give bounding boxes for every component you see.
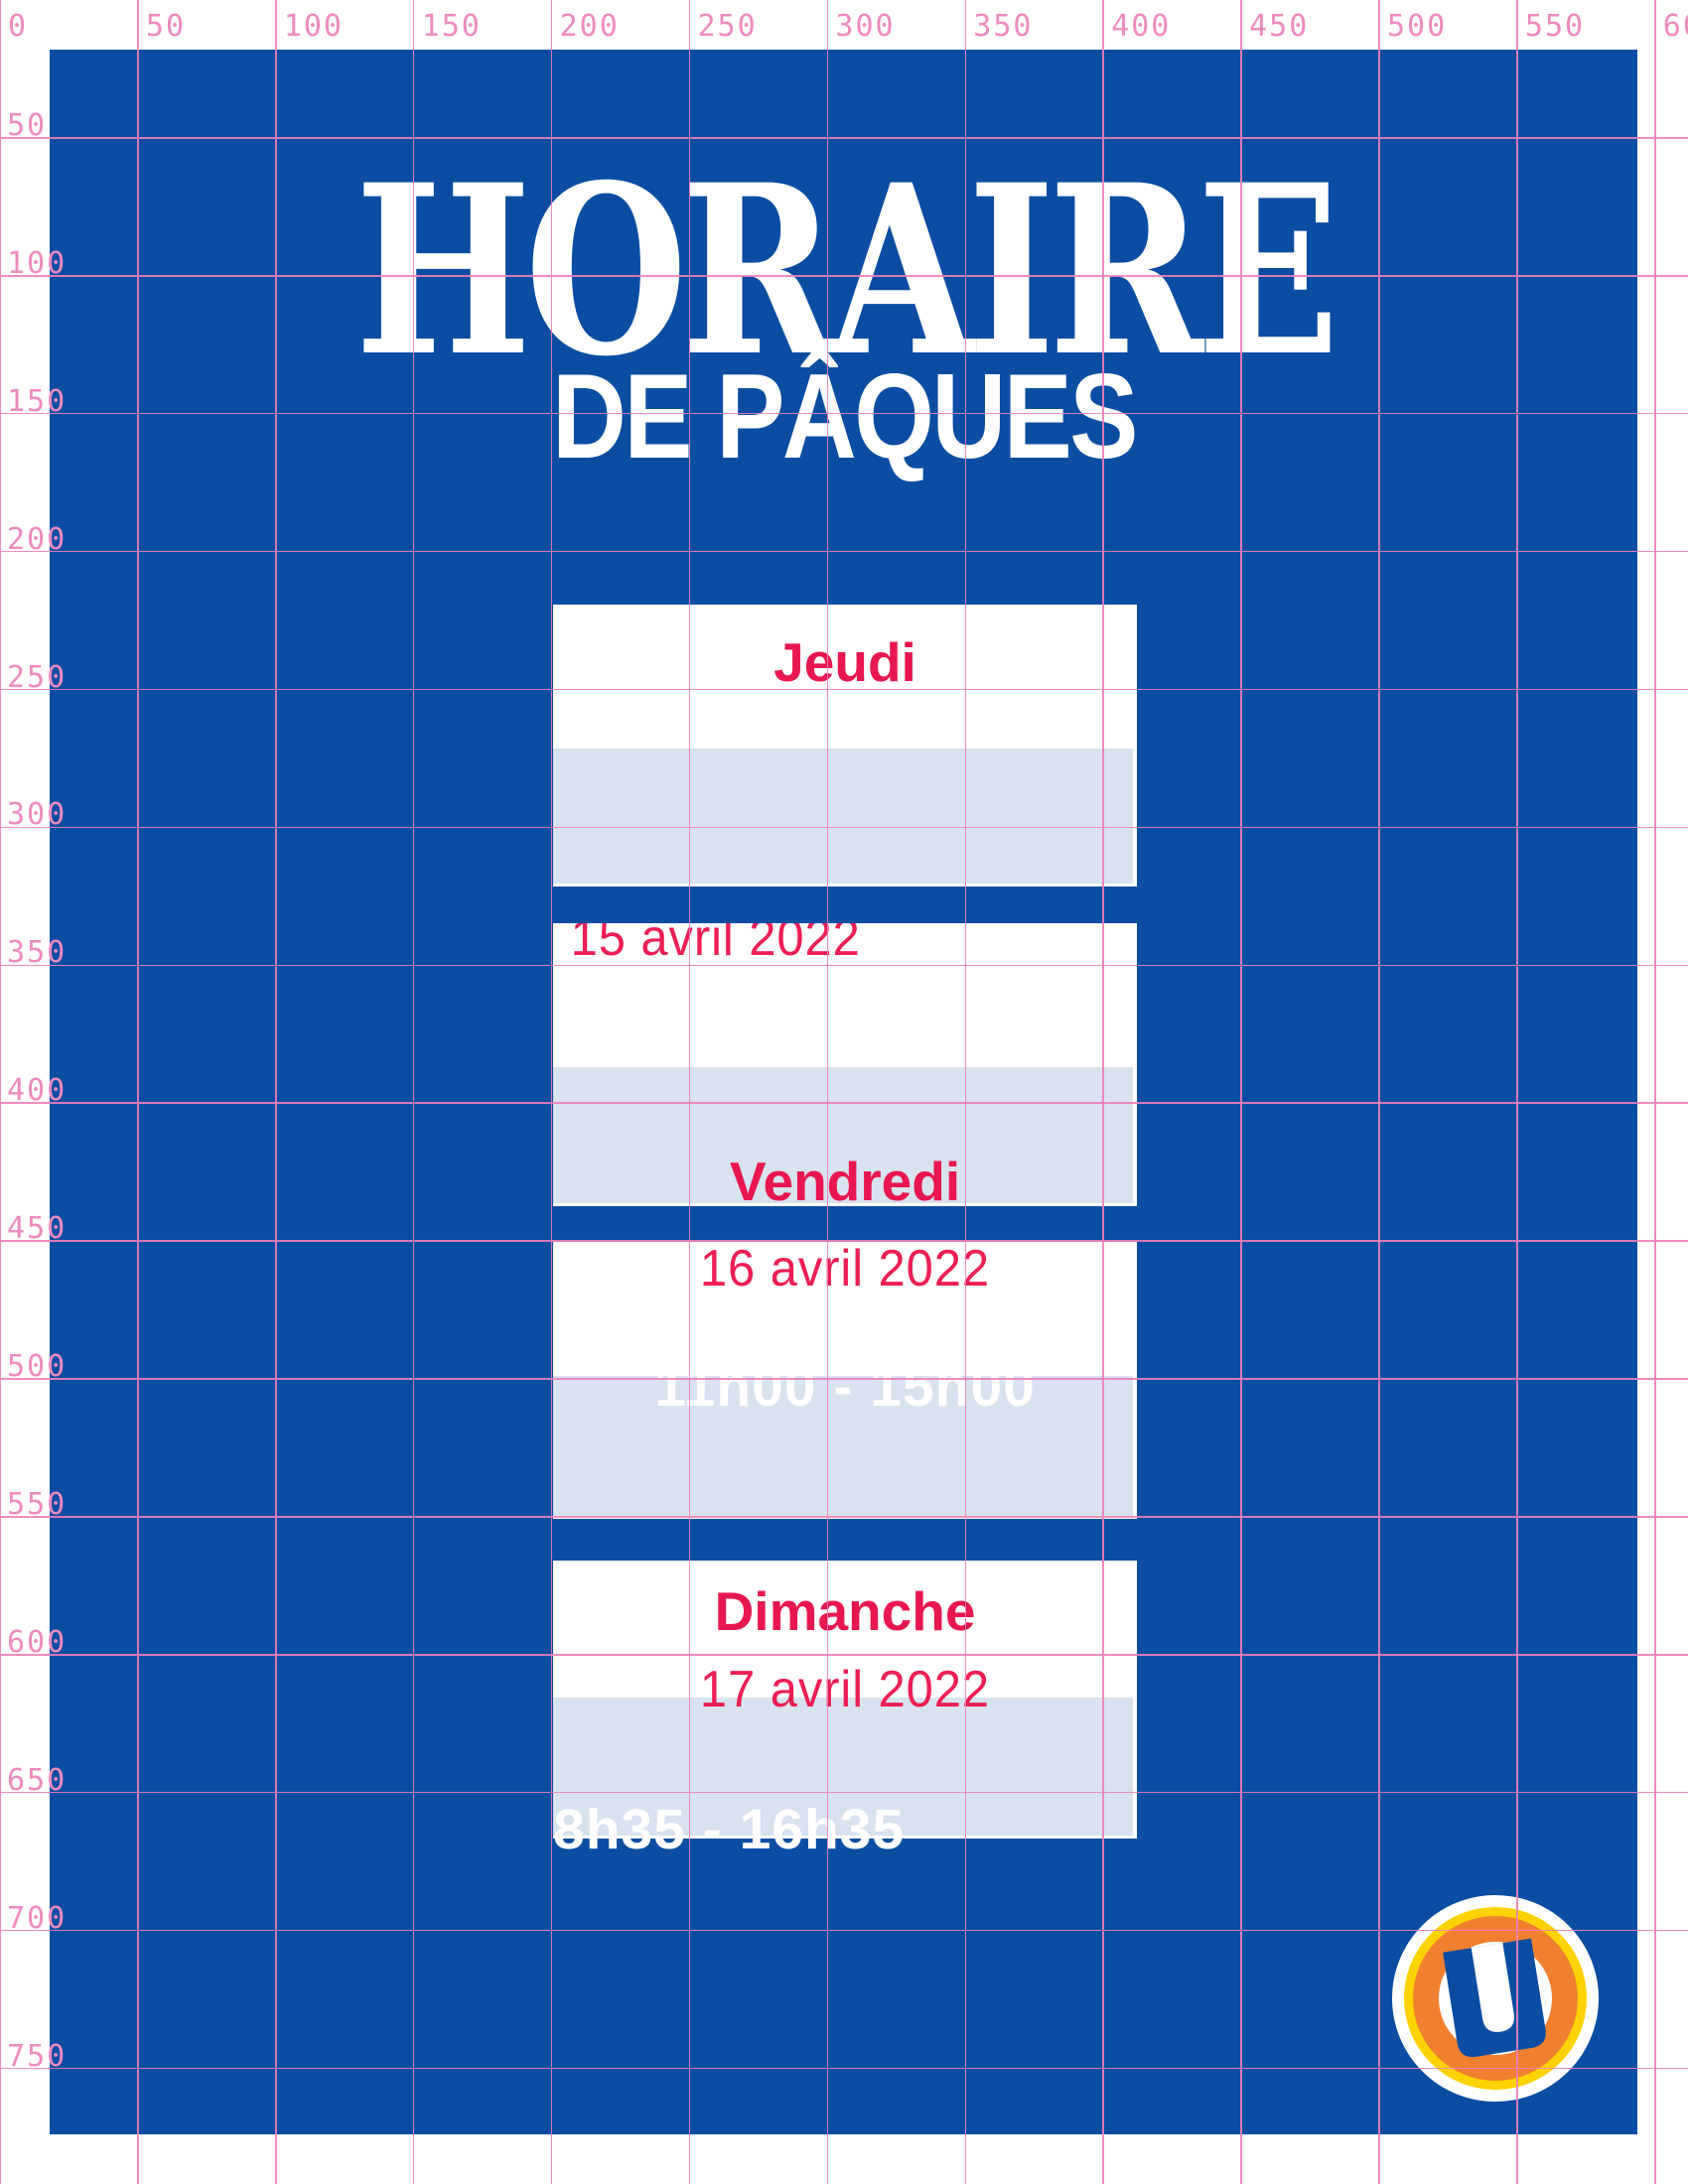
ruler-label-top: 450 [1249,12,1309,42]
ruler-label-top: 0 [8,12,28,42]
date-label-clipped: 15 avril 2022 [553,923,1137,1042]
time-label-clipped: 8h35 - 16h35 [553,1805,1137,1876]
ruler-label-top: 200 [560,12,620,42]
card-band [553,749,1133,884]
date-label: 16 avril 2022 [571,1243,1120,1295]
grid-line-vertical [0,0,1,2184]
poster-subtitle: DE PÂQUES [127,355,1562,477]
ruler-label-top: 350 [973,12,1033,42]
time-label: 11h00 - 15h00 [553,1359,1137,1416]
ruler-label-top: 300 [835,12,895,42]
ruler-label-top: 600 [1663,12,1688,42]
day-label: Jeudi [553,635,1137,690]
ruler-label-top: 250 [698,12,758,42]
design-canvas: HORAIRE DE PÂQUES Jeudi 15 avril 2022 Ve… [0,0,1688,2184]
day-label: Dimanche [553,1584,1137,1639]
ruler-label-top: 500 [1387,12,1447,42]
ruler-label-top: 50 [146,12,186,42]
ruler-label-top: 550 [1525,12,1585,42]
day-label: Vendredi [553,1155,1137,1209]
ruler-label-top: 400 [1111,12,1171,42]
date-label: 17 avril 2022 [571,1664,1120,1715]
date-label: 15 avril 2022 [571,923,1120,968]
grid-line-vertical [1654,0,1656,2184]
time-label: 8h35 - 16h35 [553,1805,1137,1862]
ruler-label-top: 150 [422,12,482,42]
ruler-label-left: 50 [7,111,47,141]
brand-logo-u-icon [1386,1889,1605,2108]
ruler-label-top: 100 [284,12,344,42]
